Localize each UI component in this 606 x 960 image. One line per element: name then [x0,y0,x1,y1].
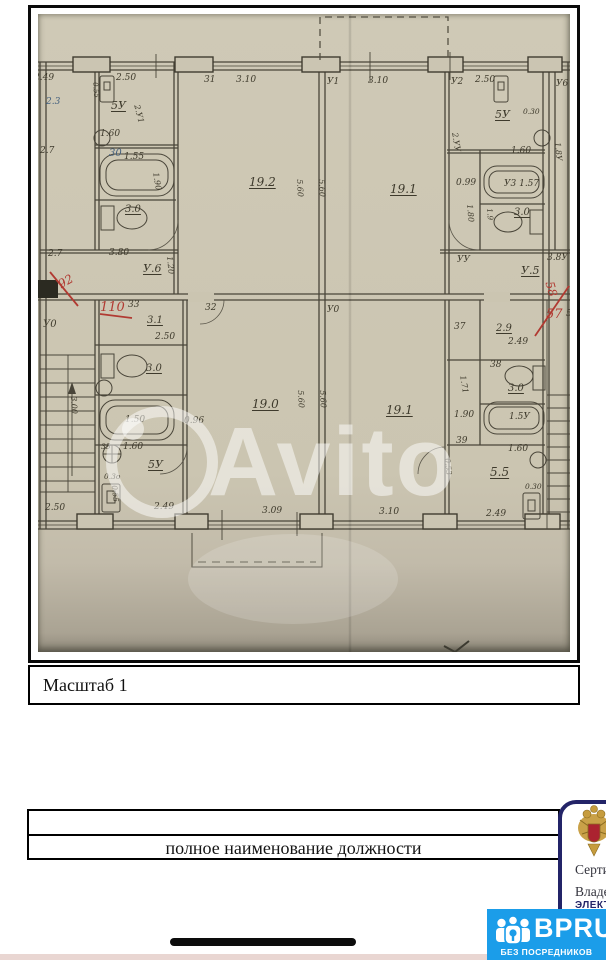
plan-label: 1.90 [151,172,162,191]
signature-table-row-empty [29,811,558,836]
plan-label: 31 [204,76,215,85]
plan-label: 5.60 [295,179,304,197]
plan-label: 1.9 [486,208,495,221]
plan-label: 3.8У [547,254,568,263]
plan-label: 5.60 [317,179,326,197]
plan-label: 1.60 [508,445,528,454]
position-caption: полное наименование должности [166,838,422,859]
plan-label: 1.60 [100,130,120,139]
plan-label: 2.49 [508,338,528,347]
plan-label: 19.1 [390,183,417,195]
plan-label: У.5 [521,265,539,276]
plan-label: 5У [495,109,510,120]
plan-label: У0 [43,320,57,330]
scale-box: Масштаб 1 [28,665,580,705]
plan-label: 30 [109,149,122,159]
plan-label: 2.50 [475,76,495,85]
plan-label: 0.30 [523,108,540,116]
plan-label: 3.0 [125,205,141,215]
plan-label: У3 1.57 [504,180,539,189]
coat-of-arms-icon [572,804,606,858]
plan-label: 5.5 [490,466,509,478]
avito-watermark: Avito [208,406,457,518]
redaction-bar [170,938,356,946]
plan-label: 57 [546,308,563,321]
signature-table-row-caption: полное наименование должности [29,836,558,860]
plan-label: 39 [456,437,467,446]
plan-label: УУ [457,256,470,265]
plan-label: 1.55 [124,153,144,162]
entrance-block [38,280,58,298]
certificate-label: Сертификат [575,862,606,878]
plan-label: У.6 [143,263,161,274]
plan-label: 2.49 [38,74,54,83]
plan-label: 0.30 [525,483,542,491]
plan-label: 2.50 [45,504,65,513]
plan-label: 2.50 [116,74,136,83]
plan-label: У1 [327,78,339,87]
plan-label: 38 [490,361,501,370]
plan-label: 2.49 [486,510,506,519]
plan-label: У6 [556,80,568,89]
bpru-tagline: БЕЗ ПОСРЕДНИКОВ [487,947,606,957]
plan-label: У2 [451,78,463,87]
screenshot-page: 2.492.50313.10У13.10У22.50У62.32.72.7У02… [0,0,606,960]
plan-label: 32 [205,304,216,313]
plan-label: 110 [100,301,125,314]
plan-label: 5У [566,310,570,319]
plan-label: 1.5У [509,413,530,422]
plan-label: 3.1 [147,316,163,326]
bpru-badge: BPRU БЕЗ ПОСРЕДНИКОВ [487,909,606,960]
plan-label: 3.00 [69,396,78,414]
plan-label: 2.9 [496,324,512,334]
balcony-top [320,17,448,60]
plan-label: 33 [128,301,139,310]
plan-label: 2.7 [40,147,54,156]
signature-table: полное наименование должности [27,809,560,860]
scale-label: Масштаб 1 [43,675,128,696]
plan-label: 1.8У [553,142,563,161]
avito-logo-dot-icon [122,418,144,440]
plan-label: 2.3 [46,98,60,107]
plan-label: 3.0 [508,384,524,394]
plan-label: 3.10 [368,77,388,86]
plan-label: 1.20 [165,256,175,274]
bpru-people-lock-icon [495,916,531,948]
owner-label: Владелец [575,884,606,900]
photo-frame: 2.492.50313.10У13.10У22.50У62.32.72.7У02… [28,5,580,663]
pen-check-mark [444,641,469,652]
bpru-brand-text: BPRU [534,915,606,942]
floor-plan-photo: 2.492.50313.10У13.10У22.50У62.32.72.7У02… [38,14,570,652]
plan-label: 19.2 [249,176,276,188]
plan-label: 1.90 [454,411,474,420]
plan-label: 1.71 [458,375,469,394]
plan-label: 2.7 [48,250,62,259]
plan-label: 5У [111,100,126,111]
staircase-left [40,355,95,492]
plan-label: 3.10 [236,76,256,85]
plan-label: 1.80 [465,204,475,222]
plan-label: 37 [454,323,465,332]
watermark-blob [188,534,398,624]
plan-label: 0.99 [456,179,476,188]
plan-label: 58 [543,280,559,298]
plan-label: У0 [327,306,339,315]
plan-label: 2.50 [155,333,175,342]
plan-label: 3.80 [109,249,129,258]
toilet-icon [101,206,114,230]
plan-label: 3.0 [514,208,530,218]
plan-label: 0.55 [91,82,99,98]
plan-label: 1.60 [511,147,531,156]
plan-label: 3.0 [146,364,162,374]
staircase-right [547,300,570,529]
